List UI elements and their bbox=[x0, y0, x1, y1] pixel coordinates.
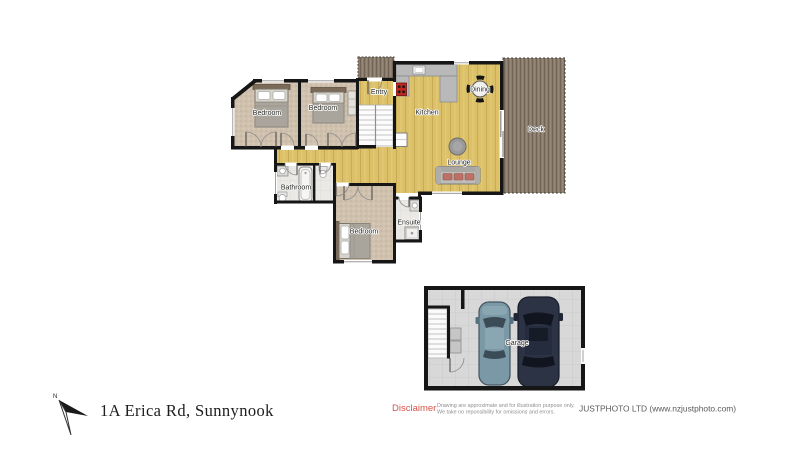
ensuite-label: Ensuite bbox=[397, 220, 420, 227]
main-floor-plan: Entry Kitchen Dining Deck Lounge Bedroom… bbox=[231, 57, 565, 264]
disclaimer-line2: We take no reponsibility for omissions a… bbox=[437, 410, 555, 416]
bedroom1-bed bbox=[253, 85, 290, 128]
lounge-pouf bbox=[449, 138, 466, 155]
garage-plan: Garage bbox=[424, 286, 585, 391]
floor-plan-page: Entry Kitchen Dining Deck Lounge Bedroom… bbox=[0, 0, 800, 450]
entry-porch-deck bbox=[358, 57, 394, 78]
garage-staircase bbox=[428, 309, 447, 358]
bathroom-label: Bathroom bbox=[281, 185, 312, 192]
lounge-label: Lounge bbox=[447, 160, 470, 167]
kitchen-label: Kitchen bbox=[415, 110, 438, 117]
bedroom2-dresser bbox=[348, 91, 356, 115]
sofa bbox=[436, 167, 480, 185]
company-credit: JUSTPHOTO LTD (www.nzjustphoto.com) bbox=[579, 404, 736, 414]
stove-cooktop bbox=[396, 83, 407, 96]
deck-sliding-door bbox=[500, 110, 505, 158]
garage-label: Garage bbox=[505, 340, 528, 347]
entry-label: Entry bbox=[371, 89, 388, 96]
bedroom3-bed bbox=[334, 222, 370, 261]
deck-area bbox=[503, 58, 565, 193]
north-letter: N bbox=[53, 394, 57, 400]
bedroom1-label: Bedroom bbox=[253, 110, 282, 117]
disclaimer-line1: Drawing are approximate and for illustra… bbox=[437, 403, 575, 409]
entry-staircase bbox=[358, 105, 393, 146]
property-address: 1A Erica Rd, Sunnynook bbox=[100, 401, 274, 420]
dining-label: Dining bbox=[470, 87, 490, 94]
bedroom2-label: Bedroom bbox=[309, 105, 338, 112]
north-arrow-icon: N bbox=[53, 394, 88, 435]
disclaimer-label: Disclaimer bbox=[392, 403, 436, 414]
deck-label: Deck bbox=[528, 127, 544, 134]
floor-plan-canvas: Entry Kitchen Dining Deck Lounge Bedroom… bbox=[0, 0, 800, 450]
bedroom3-label: Bedroom bbox=[350, 229, 379, 236]
